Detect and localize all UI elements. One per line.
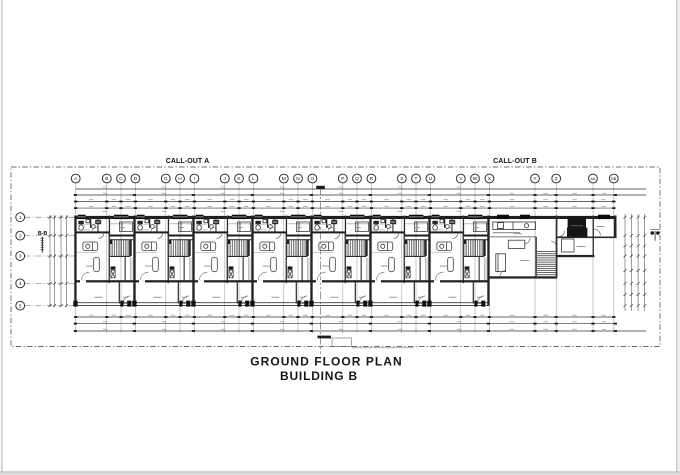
svg-text:Q: Q <box>355 176 359 182</box>
svg-text:CALL-OUT B: CALL-OUT B <box>493 158 537 165</box>
svg-text:D: D <box>134 176 138 182</box>
svg-text:G: G <box>164 176 168 182</box>
svg-text:I: I <box>194 176 195 182</box>
svg-text:S: S <box>400 176 403 182</box>
svg-text:5: 5 <box>19 303 22 309</box>
svg-text:P: P <box>341 176 344 182</box>
svg-text:C: C <box>119 176 123 182</box>
svg-text:GROUND FLOOR PLAN: GROUND FLOOR PLAN <box>250 354 403 368</box>
svg-text:1: 1 <box>19 215 22 221</box>
svg-text:M: M <box>282 176 286 182</box>
svg-text:BB: BB <box>611 177 617 181</box>
svg-text:W: W <box>473 176 478 182</box>
svg-text:R: R <box>370 176 374 182</box>
svg-text:BUILDING B: BUILDING B <box>280 369 358 383</box>
svg-text:4: 4 <box>19 281 22 287</box>
svg-text:N: N <box>296 176 300 182</box>
svg-text:AA: AA <box>590 177 596 181</box>
svg-text:H: H <box>178 176 182 182</box>
svg-text:L: L <box>252 176 255 182</box>
svg-text:CALL-OUT A: CALL-OUT A <box>166 158 210 165</box>
svg-text:2: 2 <box>19 233 22 239</box>
svg-text:U: U <box>429 176 433 182</box>
svg-text:B: B <box>105 176 108 182</box>
svg-text:Z: Z <box>555 176 558 182</box>
svg-text:B-B: B-B <box>38 231 48 237</box>
svg-text:O: O <box>311 176 315 182</box>
svg-text:3: 3 <box>19 254 22 260</box>
svg-text:T: T <box>415 176 418 182</box>
